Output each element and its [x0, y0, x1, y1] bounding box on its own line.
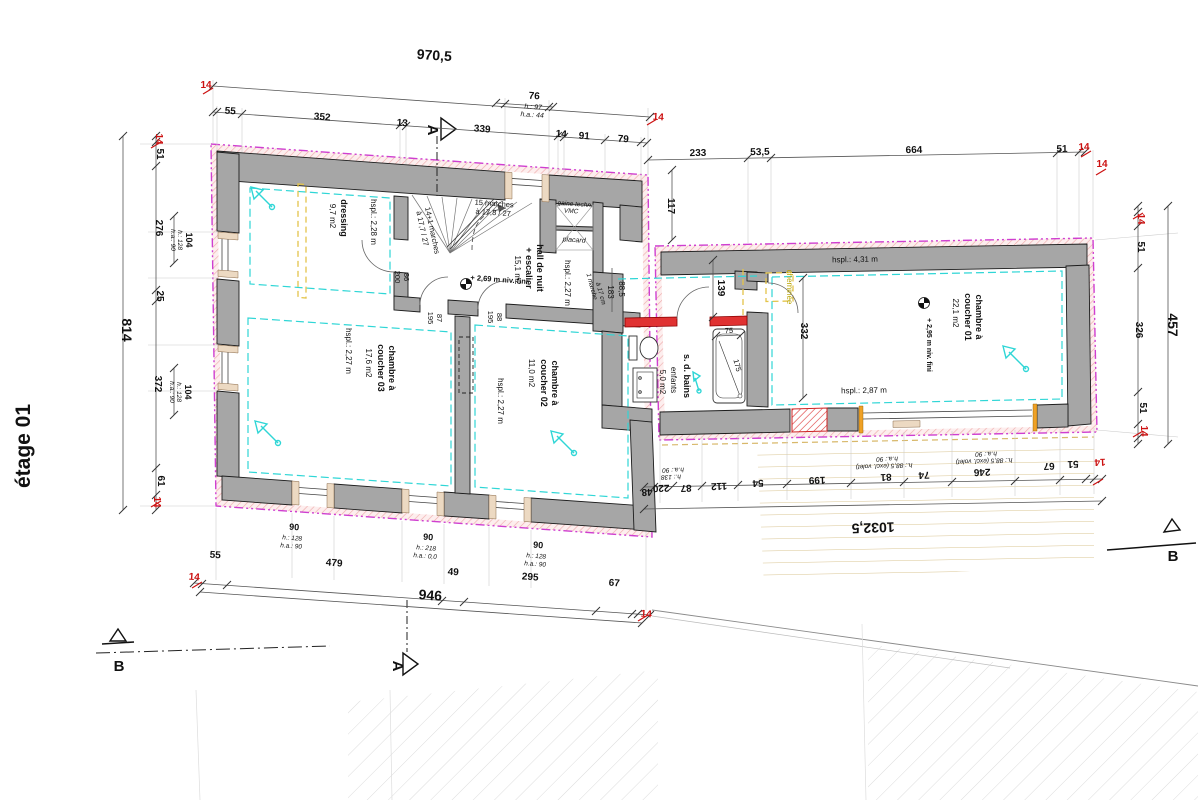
door-width: 87 [435, 314, 444, 322]
room-ch02-hspl: hspl.: 2,27 m [496, 378, 505, 424]
door-height: 195 [486, 311, 495, 324]
wc-bowl [640, 337, 658, 359]
dims_wing-label: 183 [606, 285, 615, 299]
wall [747, 312, 768, 407]
dimension-line [213, 86, 650, 117]
dims_left-label: 276 [153, 220, 164, 237]
room-sdb: s. d. bains [682, 354, 692, 398]
dim-right-overall: 457 [1165, 313, 1181, 337]
dims_wing-label: h.a.: 90 [975, 450, 997, 458]
dims_top-label: h.: 97 [524, 103, 543, 111]
wc-tank [629, 336, 637, 360]
door-height: 195 [426, 312, 435, 325]
dims_wing-label: 67 [1043, 460, 1055, 471]
section-line-b [102, 642, 134, 644]
floor-plan-drawing: étage 01AABB970,51455352133391491791476h… [0, 0, 1200, 800]
property-line [652, 616, 1010, 668]
wall [1037, 404, 1068, 428]
dims_top-label: 53,5 [750, 147, 770, 158]
room-sdb: enfants [669, 367, 678, 393]
room-ch03-hspl: hspl.: 2,27 m [344, 328, 353, 374]
site-line [196, 690, 200, 800]
site-hatch-area [868, 644, 1198, 800]
room-dressing-hspl: hspl.: 2,28 m [369, 199, 378, 245]
site-line [862, 624, 866, 800]
wall [217, 152, 239, 233]
room-dressing: dressing [339, 199, 349, 237]
wall [222, 476, 292, 505]
window-frame-orange [859, 406, 863, 433]
dim-ins: 14 [188, 572, 200, 584]
dims_wing-label: 220 [652, 482, 669, 494]
wall [556, 226, 593, 231]
room-ch01: coucher 01 [963, 293, 973, 341]
dims_right-label: 326 [1133, 322, 1144, 339]
dims_top-label: 51 [1056, 144, 1068, 155]
room-ch01: chambre à [974, 294, 984, 340]
section-marker-a-bottom: A [389, 661, 406, 672]
dims_bottom-label: 90 [289, 522, 300, 533]
room-dressing-area: 9,7 m2 [328, 204, 337, 229]
dims_wing-label: 112 [710, 480, 727, 492]
floor-plan-canvas: étage 01AABB970,51455352133391491791476h… [0, 0, 1200, 800]
dim-ins: 14 [1078, 142, 1090, 153]
dims_top-label: 352 [313, 111, 331, 123]
dims_wing-label: 199 [808, 474, 825, 486]
dims_wing-label: 88,5 [617, 281, 626, 297]
dims_wing-label: 246 [973, 466, 990, 478]
dims_wing-label: 87 [680, 482, 692, 493]
dim-ins: 14 [200, 80, 212, 91]
wall [455, 316, 470, 494]
room-ch01-hspl: hspl.: 4,31 m [832, 255, 878, 265]
new-wall-red [625, 317, 677, 327]
demolition-opening [792, 408, 827, 432]
dims_top-label: 664 [906, 145, 923, 156]
dims_wing-label: 75 [725, 326, 733, 335]
room-hall: hall de nuit [535, 244, 545, 292]
room-sdb-area: 5,0 m2 [658, 370, 667, 395]
plan-title: étage 01 [12, 404, 35, 488]
dims_top-label: 13 [396, 118, 408, 130]
door-height: 200 [393, 271, 402, 284]
wall [620, 205, 642, 242]
room-ch02-area: 11,0 m2 [527, 359, 536, 388]
dim-ins: 14 [1135, 213, 1146, 225]
section-line-b [1107, 543, 1196, 550]
dim-top-overall: 970,5 [416, 46, 452, 64]
dims_top-label: 55 [224, 106, 236, 118]
dimension-line [1093, 479, 1103, 485]
wall [217, 391, 239, 478]
dims_wing-label: 81 [880, 471, 892, 482]
dimension-line [1095, 233, 1178, 240]
dims_top-label: 339 [473, 123, 491, 135]
dims_left-label: 51 [154, 148, 165, 160]
dims_bottom-label: h.: 128 [282, 534, 303, 542]
dim-wing-overall: 1032,5 [851, 519, 895, 536]
room-ch02: chambre à [550, 360, 560, 406]
dims_bottom-label: h.a.: 0,0 [413, 552, 437, 561]
dims_wing-label: 332 [798, 323, 809, 340]
section-marker-a-top: A [424, 125, 441, 136]
dim-left-overall: 814 [119, 318, 135, 342]
dims_top-label: 14 [555, 129, 567, 141]
dims_bottom-label: 55 [209, 550, 221, 562]
dims_left-label: h.a.: 90 [168, 381, 175, 403]
dims_left-label: h.: 128 [175, 382, 182, 402]
wall [217, 279, 239, 346]
dims_left-label: h.: 128 [176, 230, 183, 250]
door-width: 88 [495, 313, 504, 321]
dim-bottom-overall: 946 [418, 586, 443, 604]
dims_wing-label: 54 [752, 477, 764, 488]
dims_left-label: 104 [183, 384, 193, 399]
dims_bottom-label: 295 [521, 571, 539, 583]
room-ch01-hspl2: hspl.: 2,87 m [841, 386, 887, 396]
dims_wing-label: 48 [641, 486, 653, 497]
section-flag-b-left [110, 629, 126, 641]
window-frame-orange [1033, 404, 1037, 431]
wall [394, 296, 420, 312]
wall [394, 196, 408, 240]
sink-tap [639, 377, 642, 380]
wall [602, 331, 622, 407]
chimney-label: cheminée [785, 270, 794, 305]
dims_top-label: 233 [690, 148, 707, 159]
dims_right-label: 51 [1135, 241, 1146, 253]
dimension-line [1097, 430, 1178, 437]
dims_bottom-label: h.: 128 [526, 552, 547, 560]
dimension-line [648, 152, 1085, 160]
wall [630, 420, 656, 532]
sink-tap [639, 391, 642, 394]
wall [593, 202, 603, 273]
door-width: 86 [402, 273, 411, 281]
dims_bottom-label: h.a.: 90 [280, 542, 303, 551]
room-ch03-area: 17,6 m2 [364, 349, 373, 378]
wall [444, 492, 489, 519]
bathtub-drain [738, 394, 742, 398]
wall [1066, 265, 1091, 426]
dims_bottom-label: 90 [423, 532, 434, 543]
dim-ins: 14 [153, 133, 164, 145]
sink-basin [637, 372, 653, 398]
dims_top-label: 91 [578, 131, 590, 143]
dims_top-label: h.a.: 44 [520, 111, 544, 120]
dim-ins: 14 [652, 112, 664, 124]
dims_top-label: 76 [528, 91, 540, 103]
dims_bottom-label: 90 [533, 540, 544, 551]
room-ch01-area: 22,1 m2 [951, 299, 960, 328]
section-marker-b-left: B [114, 658, 125, 675]
dim-ins: 14 [1138, 425, 1149, 437]
dims_bottom-label: h.a.: 90 [524, 560, 547, 569]
room-ch02: coucher 02 [539, 359, 549, 407]
dims_left-label: 61 [155, 475, 166, 487]
dims_right-label: 51 [1137, 402, 1148, 414]
new-wall-red [710, 316, 747, 326]
dims_left-label: 104 [184, 232, 194, 247]
dims_wing-label: h.a.: 90 [662, 466, 684, 474]
dims_bottom-label: 49 [447, 567, 459, 579]
room-ch03: coucher 03 [376, 344, 386, 392]
dims_bottom-label: 479 [325, 557, 343, 569]
room-ch03: chambre à [387, 345, 397, 391]
dims_wing-label: 74 [918, 469, 930, 480]
section-flag-b-right [1164, 519, 1180, 532]
dim-ins: 14 [151, 496, 162, 508]
dim-ins: 14 [1096, 159, 1108, 170]
duct-label: VMC [564, 208, 579, 216]
dim-ins: 14 [640, 609, 652, 621]
dims_bottom-label: 67 [608, 578, 620, 590]
dims_left-label: 372 [152, 376, 163, 393]
wall [448, 300, 478, 316]
room-ch01-level: + 2,95 m niv. fini [925, 318, 932, 372]
wall [660, 409, 790, 435]
dims_wing-label: 51 [1067, 458, 1079, 469]
dims_top-label: 117 [665, 198, 676, 215]
dims_wing-label: h.a.: 90 [876, 455, 898, 463]
dims_wing-label: 139 [715, 280, 726, 297]
room-hall-hspl: hspl.: 2,27 m [563, 260, 572, 306]
section-marker-b-right: B [1168, 548, 1179, 565]
dim-ins: 14 [1094, 456, 1106, 467]
dims_top-label: 79 [617, 134, 629, 146]
section-line-b [96, 646, 330, 653]
wall [747, 272, 768, 282]
site-hatch-area [348, 670, 658, 800]
dims_left-label: h.a.: 90 [169, 229, 176, 251]
wall [827, 408, 858, 431]
wall [334, 484, 402, 513]
dims_left-label: 25 [154, 290, 165, 302]
dims_bottom-label: h.: 218 [416, 544, 437, 552]
